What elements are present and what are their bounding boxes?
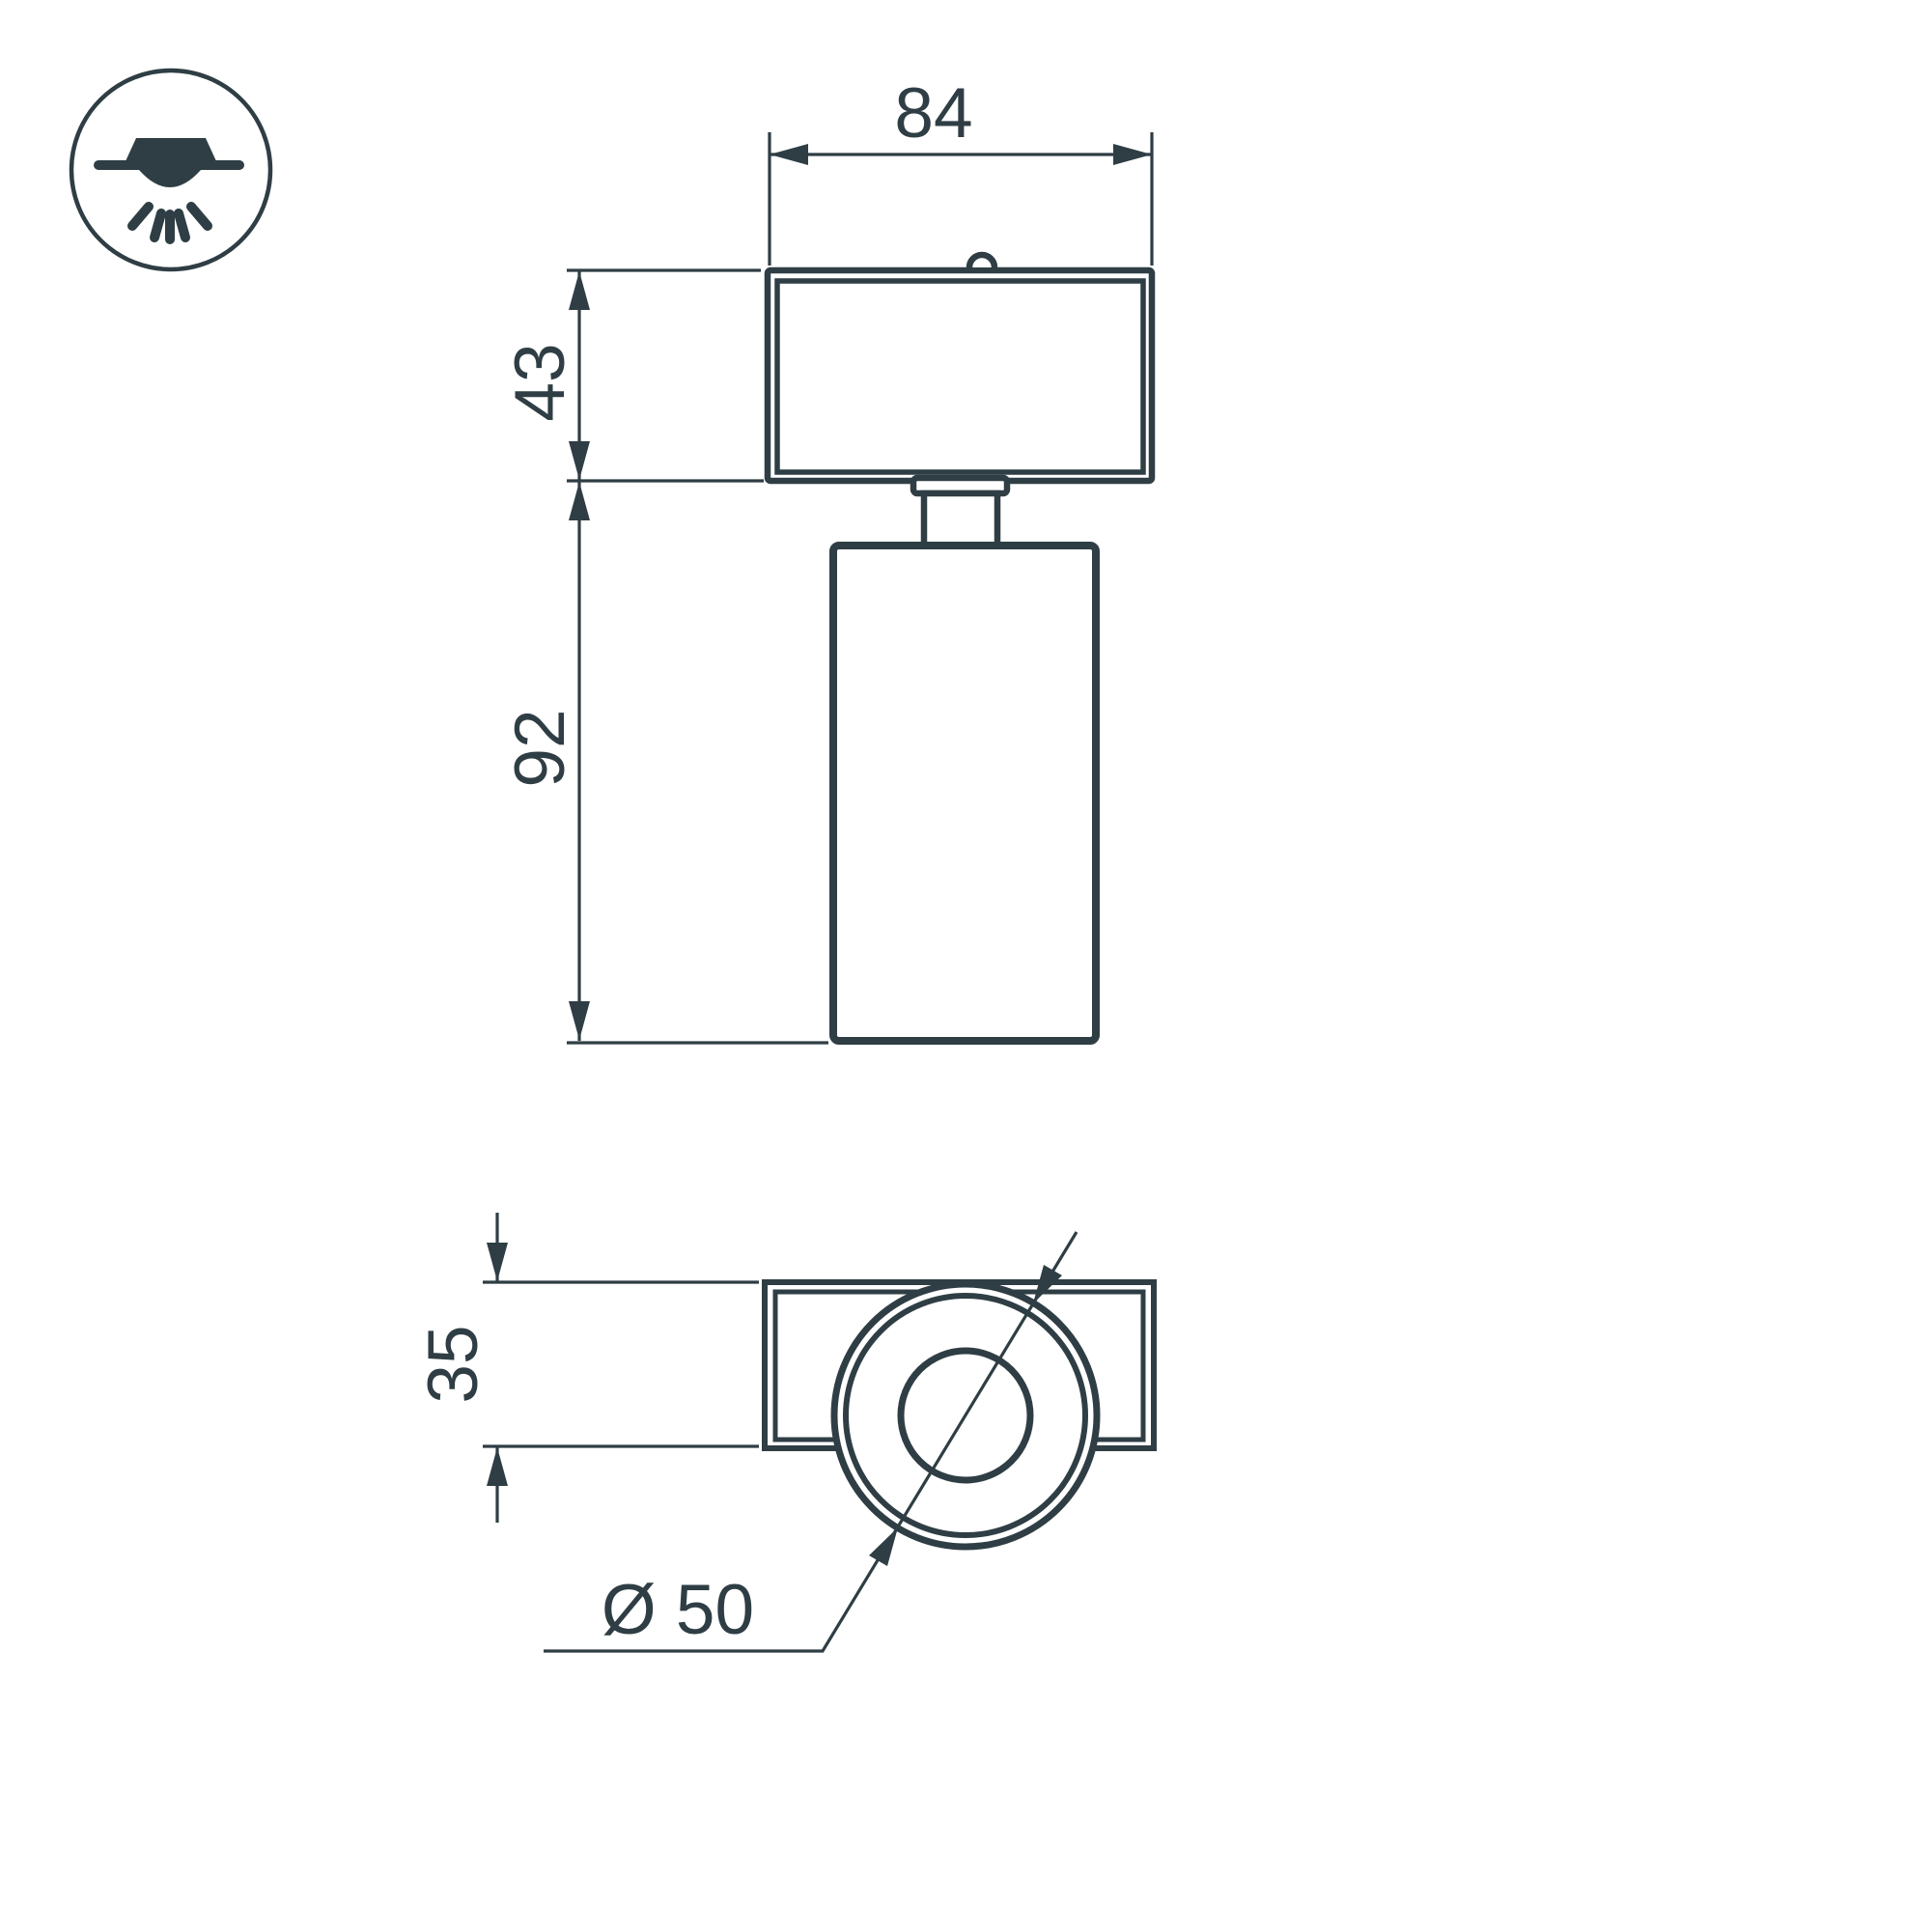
dim-label-width: 84 [894, 74, 972, 153]
light-rays [132, 207, 208, 239]
arrowhead [569, 1001, 590, 1040]
dim-depth-35: 35 [414, 1213, 759, 1523]
dim-label-depth: 35 [414, 1325, 492, 1403]
arrowhead [487, 1243, 508, 1281]
joint-stem [924, 493, 997, 549]
technical-drawing: 84 43 92 [0, 0, 1932, 1932]
lamp-housing-shape [126, 138, 216, 161]
dim-body-height-92: 92 [501, 481, 828, 1043]
fixture-bottom [765, 1282, 1154, 1547]
mounting-box-outer [768, 270, 1152, 481]
mount-type-icon [71, 70, 270, 269]
arrowhead [487, 1447, 508, 1486]
arrowhead [869, 1527, 898, 1566]
arrowhead [569, 441, 590, 480]
dim-head-height-43: 43 [501, 270, 764, 481]
arrowhead [1113, 144, 1152, 165]
drawing-canvas: 84 43 92 [0, 0, 1932, 1932]
ceiling-line-shape [94, 160, 244, 170]
spot-cylinder [833, 546, 1096, 1041]
ceiling-light-icon [94, 138, 244, 239]
arrowhead [569, 271, 590, 310]
dim-width-84: 84 [770, 74, 1152, 266]
fixture-front [768, 255, 1152, 1041]
arrowhead [569, 482, 590, 520]
front-view: 84 43 92 [501, 74, 1152, 1043]
wire-loop [969, 255, 994, 267]
bottom-view: 35 Ø 50 [414, 1213, 1154, 1651]
dim-label-body-height: 92 [501, 709, 579, 787]
arrowhead [770, 144, 808, 165]
dim-label-head-height: 43 [501, 343, 579, 421]
dim-label-diameter: Ø 50 [602, 1571, 754, 1649]
lamp-dome-shape [139, 170, 201, 187]
